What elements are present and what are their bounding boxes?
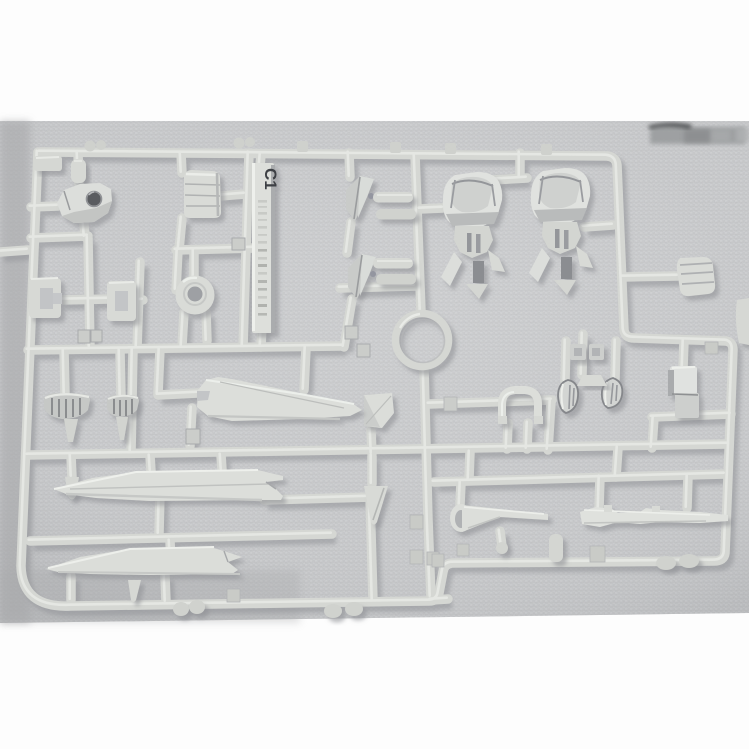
svg-text:C1: C1 <box>261 168 280 190</box>
